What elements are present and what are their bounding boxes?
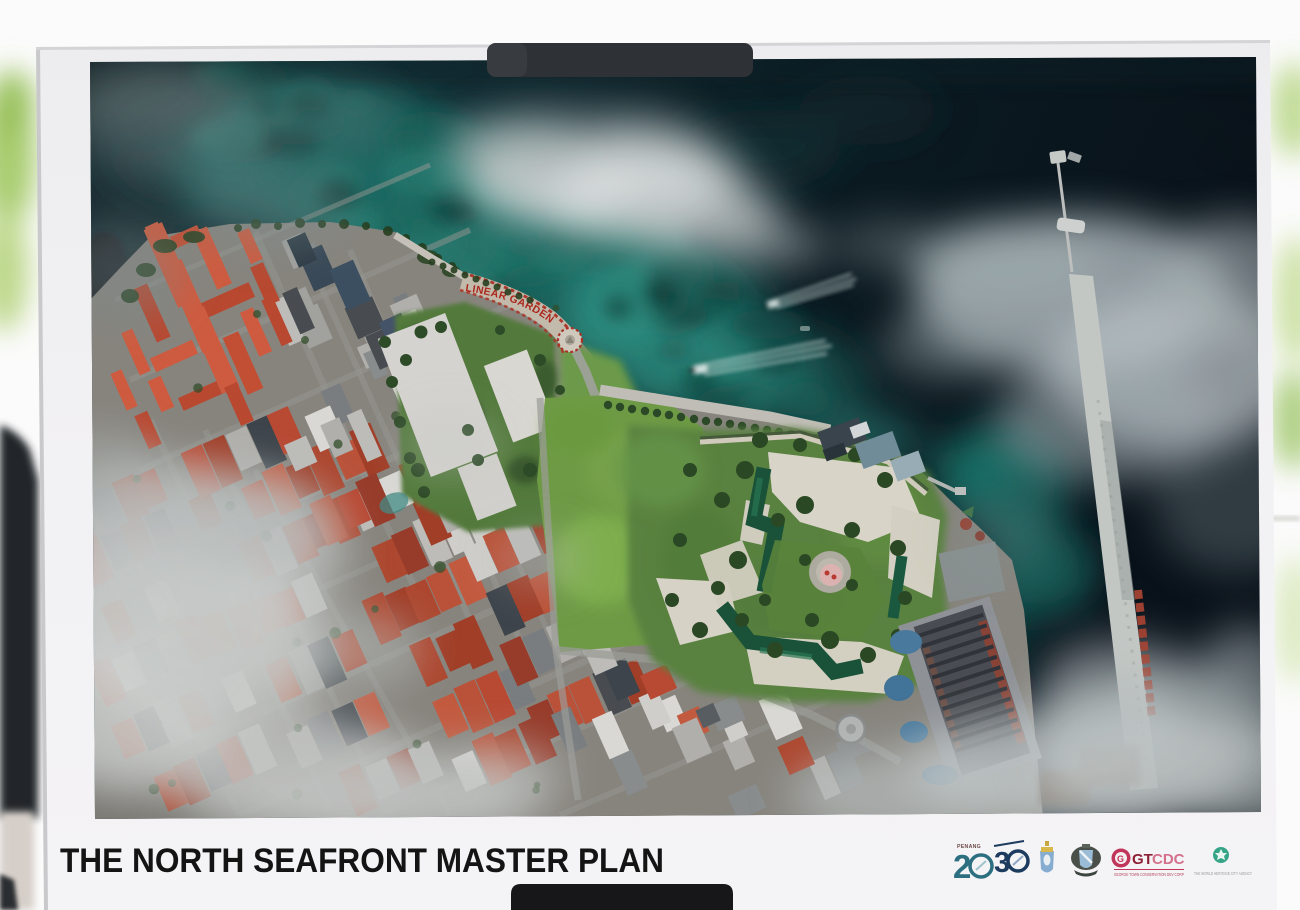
- svg-text:G: G: [1117, 854, 1124, 864]
- svg-text:CDC: CDC: [1152, 851, 1185, 868]
- svg-text:GT: GT: [1132, 851, 1153, 868]
- svg-text:THE WORLD HERITAGE CITY AGENCY: THE WORLD HERITAGE CITY AGENCY: [1194, 871, 1252, 876]
- svg-text:THE NORTH SEAFRONT MASTER PLAN: THE NORTH SEAFRONT MASTER PLAN: [60, 842, 664, 880]
- svg-text:GEORGE TOWN CONSERVATION DEV C: GEORGE TOWN CONSERVATION DEV CORP: [1114, 872, 1184, 877]
